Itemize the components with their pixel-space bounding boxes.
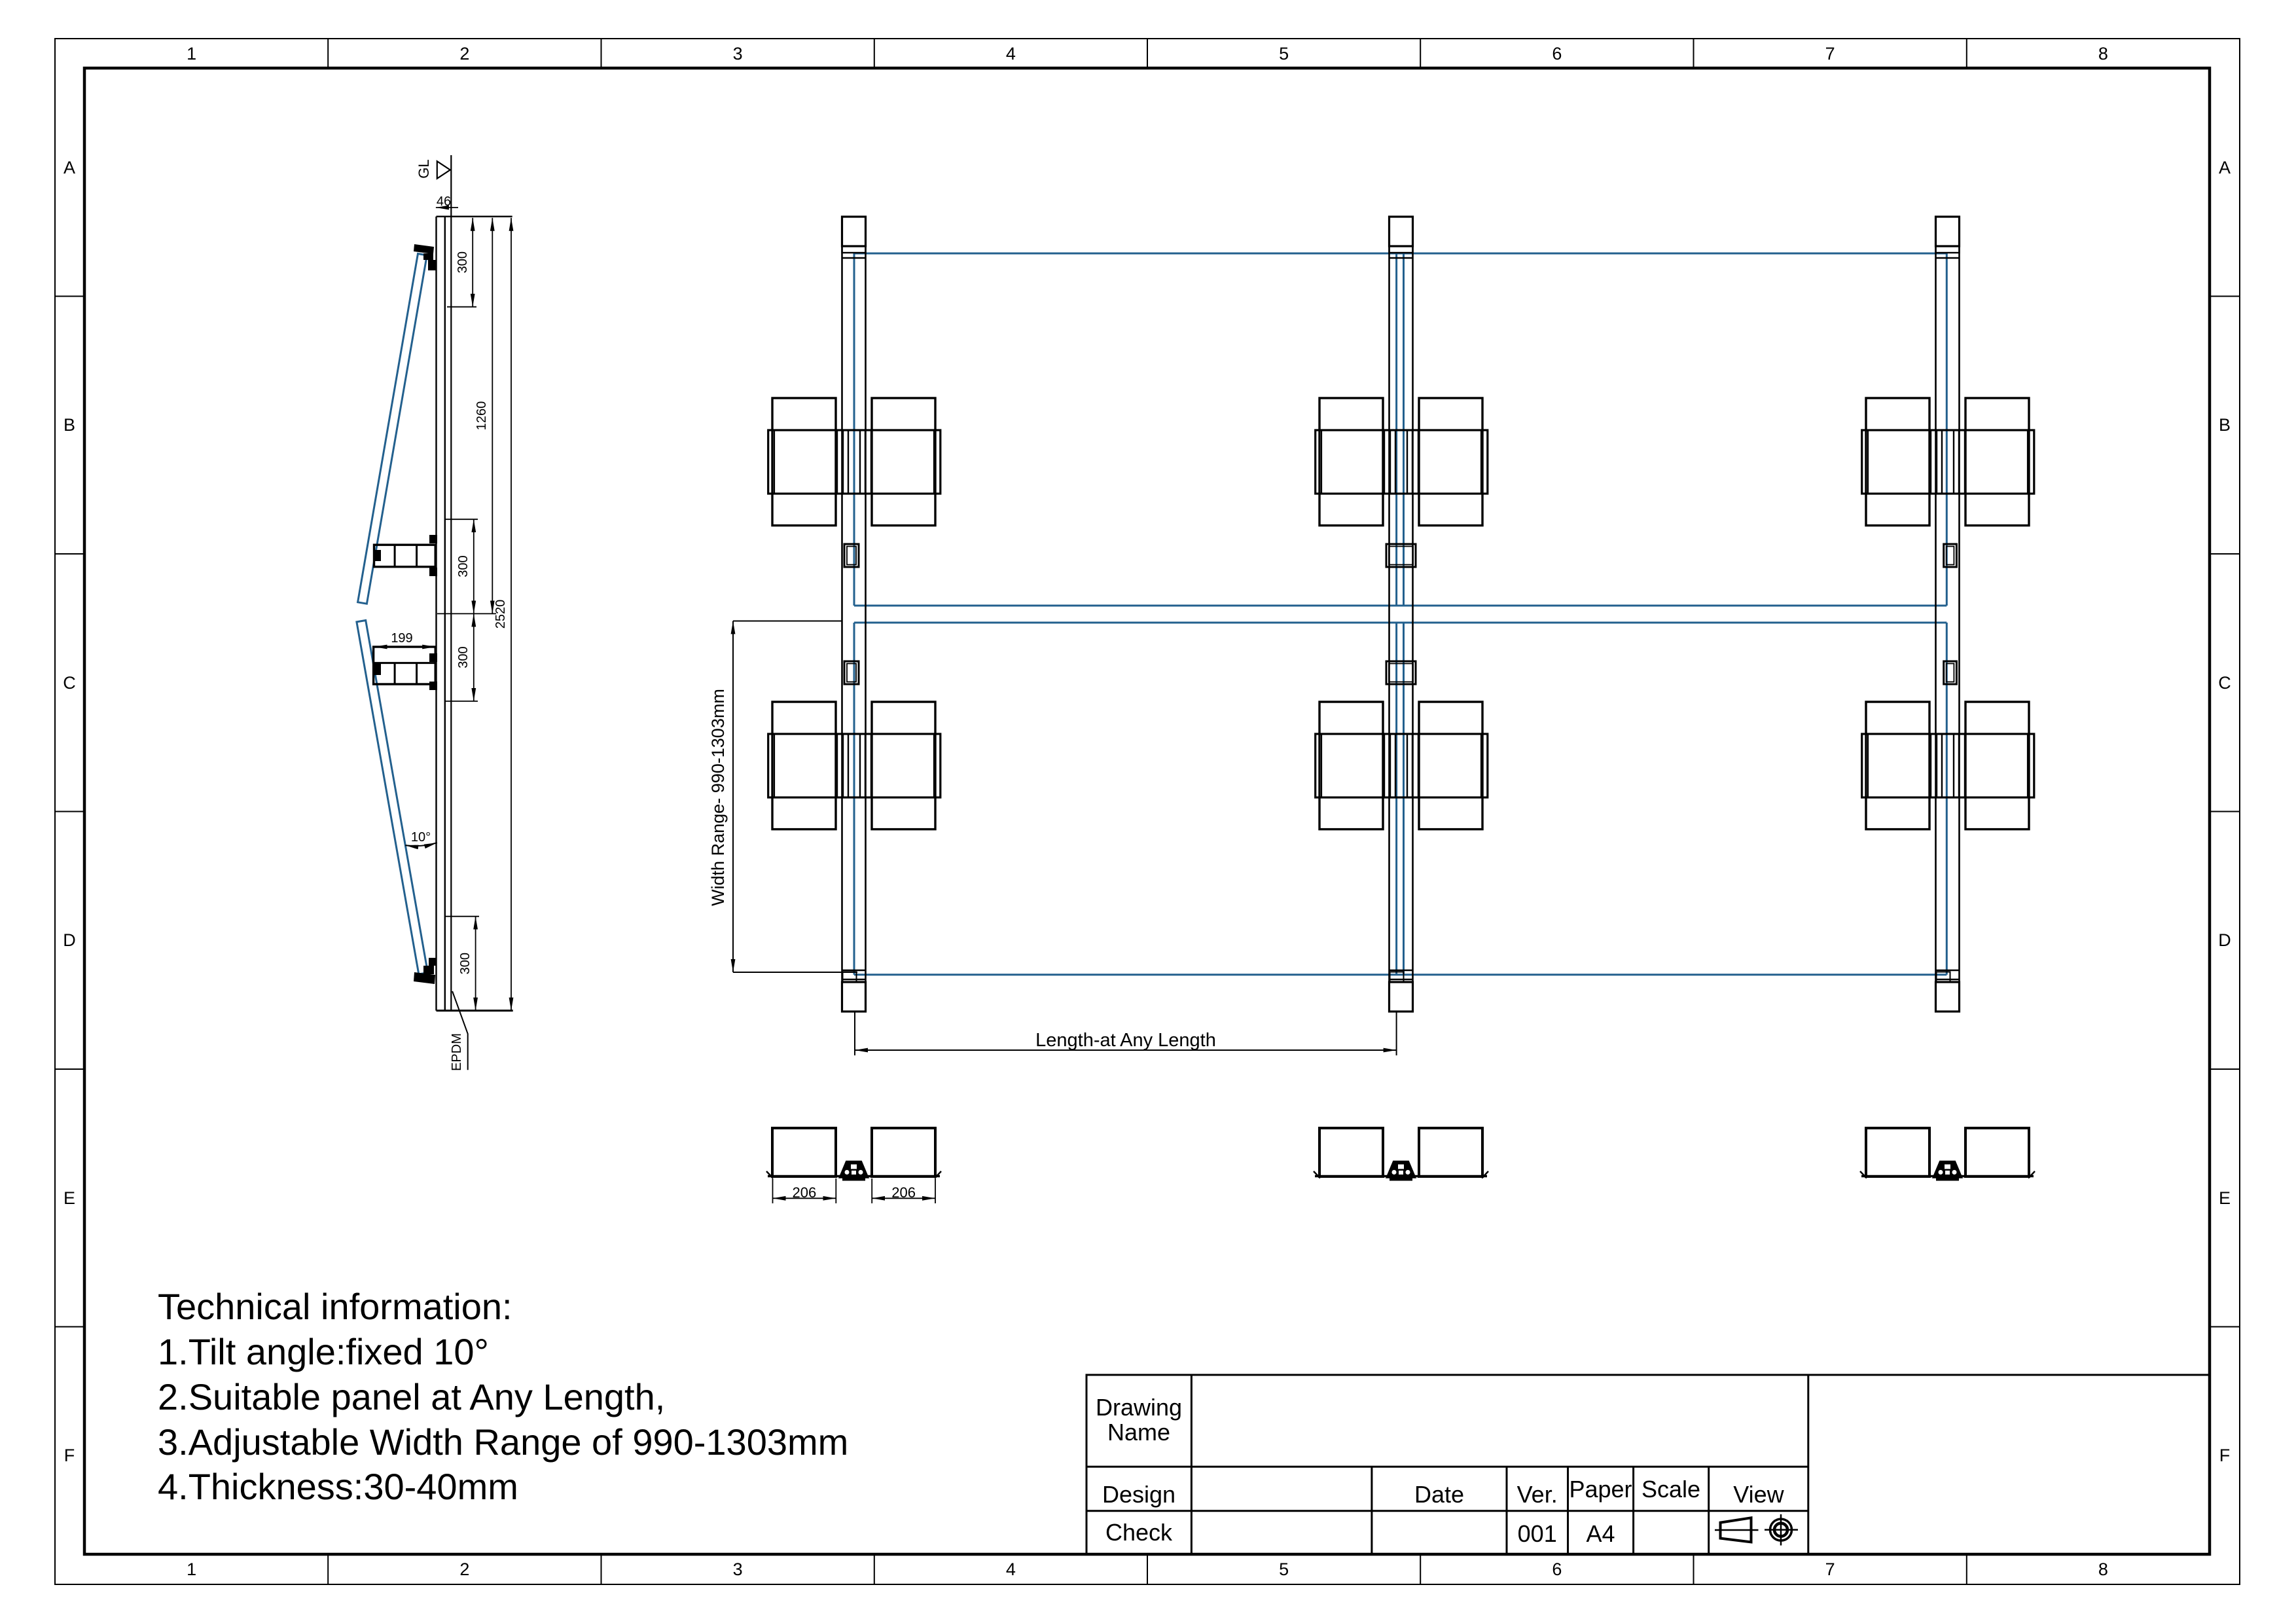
svg-text:001: 001 [1518,1520,1557,1547]
svg-text:7: 7 [1825,44,1835,64]
svg-text:Width Range- 990-1303mm: Width Range- 990-1303mm [708,689,728,906]
svg-text:Drawing: Drawing [1096,1394,1182,1421]
svg-text:E: E [2219,1188,2231,1208]
svg-text:2: 2 [459,1559,469,1579]
svg-text:F: F [64,1446,75,1465]
svg-text:3.Adjustable Width Range of 99: 3.Adjustable Width Range of 990-1303mm [158,1421,848,1463]
svg-text:206: 206 [793,1184,817,1201]
svg-text:2.Suitable panel at Any Length: 2.Suitable panel at Any Length, [158,1376,665,1417]
svg-text:1.Tilt angle:fixed 10°: 1.Tilt angle:fixed 10° [158,1331,489,1372]
svg-text:6: 6 [1552,1559,1562,1579]
svg-text:5: 5 [1279,44,1289,64]
svg-text:5: 5 [1279,1559,1289,1579]
svg-text:EPDM: EPDM [450,1033,464,1071]
svg-text:D: D [2218,930,2231,950]
svg-text:300: 300 [458,953,473,974]
svg-text:D: D [63,930,76,950]
svg-text:4.Thickness:30-40mm: 4.Thickness:30-40mm [158,1466,518,1507]
svg-text:300: 300 [456,646,471,668]
svg-text:300: 300 [456,555,471,577]
svg-text:1: 1 [187,44,196,64]
svg-text:A4: A4 [1586,1520,1615,1547]
svg-text:4: 4 [1006,1559,1016,1579]
svg-text:2: 2 [459,44,469,64]
svg-text:Scale: Scale [1641,1476,1700,1503]
svg-text:6: 6 [1552,44,1562,64]
svg-text:7: 7 [1825,1559,1835,1579]
svg-text:C: C [63,673,76,693]
svg-text:View: View [1733,1481,1784,1508]
svg-text:300: 300 [456,251,470,273]
svg-text:1: 1 [187,1559,196,1579]
svg-text:Check: Check [1105,1519,1173,1546]
svg-text:10°: 10° [411,830,431,845]
svg-text:3: 3 [733,1559,743,1579]
svg-text:3: 3 [733,44,743,64]
svg-text:46: 46 [437,194,451,209]
svg-text:Paper: Paper [1569,1476,1632,1503]
svg-text:B: B [63,415,75,435]
svg-text:Technical information:: Technical information: [158,1286,512,1327]
svg-text:1260: 1260 [475,401,489,431]
svg-text:GL: GL [416,159,432,178]
svg-text:A: A [2219,158,2231,177]
svg-text:2520: 2520 [493,600,508,629]
svg-text:Name: Name [1107,1419,1170,1446]
svg-text:Date: Date [1414,1481,1464,1508]
svg-text:F: F [2219,1446,2231,1465]
svg-text:C: C [2218,673,2231,693]
svg-text:206: 206 [891,1184,916,1201]
svg-text:8: 8 [2098,44,2108,64]
svg-text:Length-at Any Length: Length-at Any Length [1035,1030,1216,1051]
svg-text:Design: Design [1102,1481,1175,1508]
svg-text:B: B [2219,415,2231,435]
svg-text:8: 8 [2098,1559,2108,1579]
svg-text:Ver.: Ver. [1517,1481,1558,1508]
svg-text:199: 199 [391,631,412,646]
svg-text:A: A [63,158,75,177]
svg-text:E: E [63,1188,75,1208]
svg-text:4: 4 [1006,44,1016,64]
